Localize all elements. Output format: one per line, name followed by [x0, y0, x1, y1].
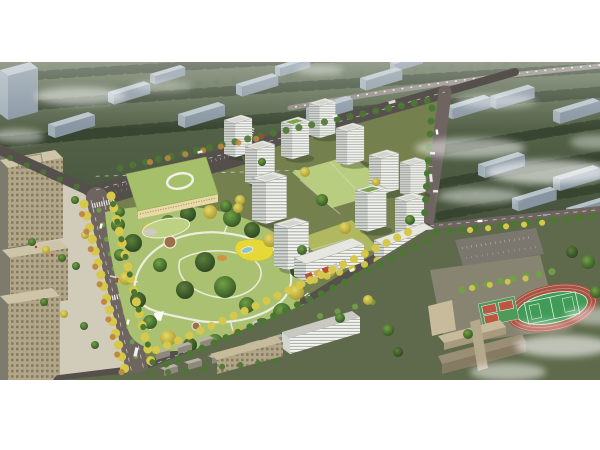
aerial-rendering — [0, 0, 600, 450]
office-block-south — [0, 288, 60, 380]
bus-shelter — [433, 190, 438, 193]
round-plaza — [164, 236, 176, 248]
aerial-rendering-image — [0, 0, 600, 450]
